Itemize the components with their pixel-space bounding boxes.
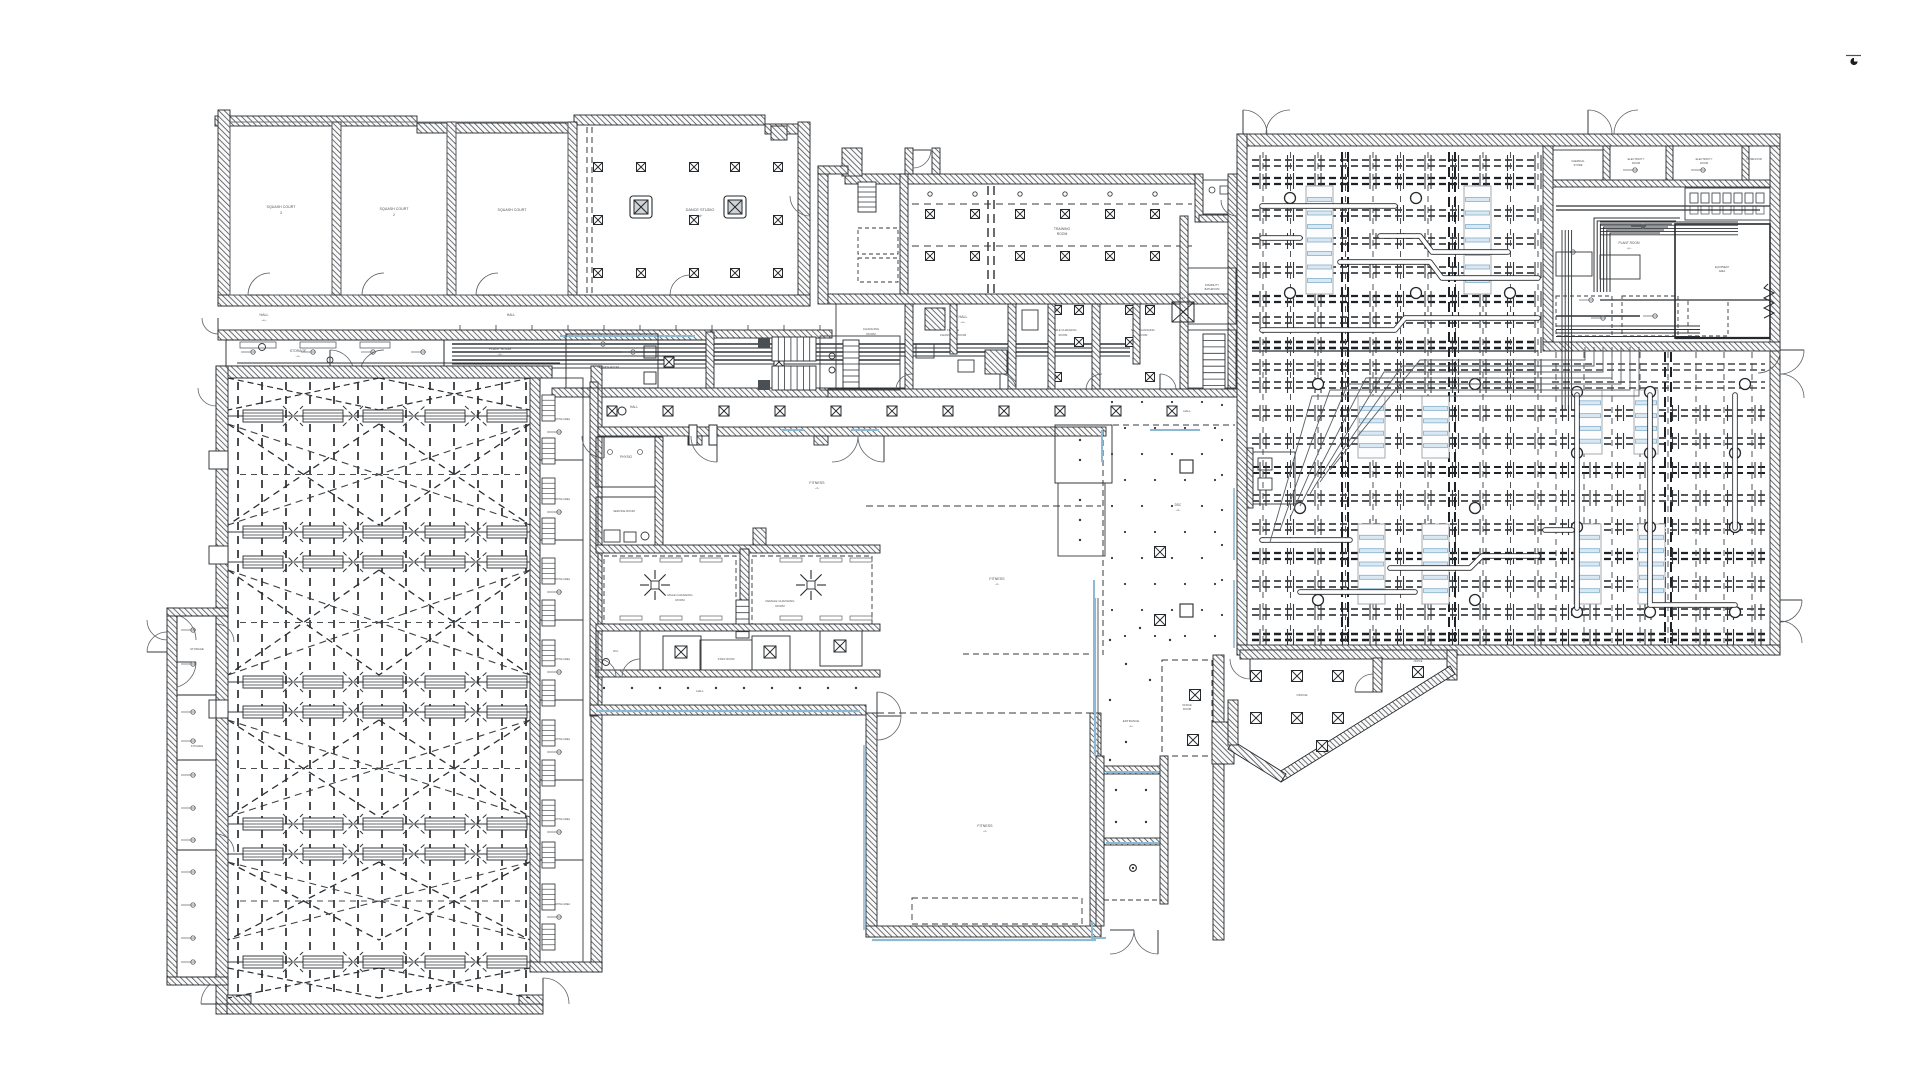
svg-text:~f~: ~f~ xyxy=(983,829,988,833)
svg-text:HALL: HALL xyxy=(1183,409,1191,413)
svg-text:ROOM: ROOM xyxy=(675,598,685,602)
svg-text:ROOM: ROOM xyxy=(1183,707,1191,711)
svg-text:ROOM: ROOM xyxy=(1059,333,1068,337)
svg-text:STORE: STORE xyxy=(1574,163,1583,167)
svg-text:SQUASH COURT: SQUASH COURT xyxy=(267,205,297,209)
svg-text:DSC: DSC xyxy=(1175,503,1182,507)
svg-text:FITNESS: FITNESS xyxy=(809,481,825,485)
svg-text:CHEMICAL: CHEMICAL xyxy=(1571,159,1585,163)
svg-text:OFFICE: OFFICE xyxy=(1182,703,1192,707)
svg-text:AREA: AREA xyxy=(1719,270,1726,273)
svg-text:FEMALE CHANGING: FEMALE CHANGING xyxy=(765,599,795,603)
svg-text:CHANGING: CHANGING xyxy=(863,327,880,331)
svg-text:HALL: HALL xyxy=(630,405,638,409)
svg-text:PHYSIO: PHYSIO xyxy=(620,455,633,459)
svg-text:MALE CHANGING: MALE CHANGING xyxy=(667,593,693,597)
svg-text:FITNESS: FITNESS xyxy=(989,577,1005,581)
svg-text:ROOM: ROOM xyxy=(1632,161,1640,165)
svg-text:EQUIPMENT: EQUIPMENT xyxy=(1715,266,1730,269)
svg-text:2: 2 xyxy=(393,213,395,217)
svg-text:BATHROOM: BATHROOM xyxy=(1205,287,1220,291)
svg-text:FITNESS: FITNESS xyxy=(977,824,993,828)
svg-text:LIFT: LIFT xyxy=(1181,297,1186,300)
svg-text:PLANT ROOM: PLANT ROOM xyxy=(1618,241,1639,245)
svg-text:~s~: ~s~ xyxy=(295,354,300,358)
svg-text:~e~: ~e~ xyxy=(261,318,266,322)
svg-text:~p~: ~p~ xyxy=(1627,246,1632,250)
svg-text:STAFF ROOM: STAFF ROOM xyxy=(718,657,735,661)
svg-text:HALL: HALL xyxy=(507,313,516,317)
svg-text:ROOM: ROOM xyxy=(1700,161,1708,165)
svg-text:W.C.: W.C. xyxy=(613,649,619,653)
svg-text:3: 3 xyxy=(280,211,282,215)
svg-text:HALL: HALL xyxy=(260,313,269,317)
svg-text:~f~: ~f~ xyxy=(995,582,1000,586)
svg-text:~f~: ~f~ xyxy=(815,486,820,490)
svg-text:STORAGE: STORAGE xyxy=(290,349,307,353)
svg-text:~e~: ~e~ xyxy=(960,320,965,324)
svg-text:HALL: HALL xyxy=(696,689,704,693)
svg-text:SERVICE ROOM: SERVICE ROOM xyxy=(613,509,635,513)
svg-text:OFFICE: OFFICE xyxy=(1297,693,1308,697)
svg-text:ROOM: ROOM xyxy=(775,604,785,608)
svg-text:ROOM: ROOM xyxy=(1057,232,1068,236)
svg-text:~e~: ~e~ xyxy=(1129,725,1134,728)
svg-text:HALL: HALL xyxy=(959,315,968,319)
svg-text:~d~: ~d~ xyxy=(1176,508,1181,512)
svg-text:SERVICE ROOM: SERVICE ROOM xyxy=(597,365,619,369)
svg-text:OFFICE: OFFICE xyxy=(1414,660,1423,663)
svg-text:DISABILITY: DISABILITY xyxy=(1205,283,1219,287)
svg-text:SQUASH COURT: SQUASH COURT xyxy=(380,207,410,211)
svg-text:ELECTRICITY: ELECTRICITY xyxy=(1696,157,1713,161)
svg-text:ELECTRICITY: ELECTRICITY xyxy=(1628,157,1645,161)
svg-text:STORAGE: STORAGE xyxy=(190,647,204,651)
svg-text:ENTRANCE: ENTRANCE xyxy=(1123,719,1140,723)
svg-text:SQUASH COURT: SQUASH COURT xyxy=(498,208,528,212)
svg-text:KITCHEN: KITCHEN xyxy=(191,744,203,748)
svg-text:DANCE STUDIO: DANCE STUDIO xyxy=(686,208,715,212)
svg-text:TRAINING: TRAINING xyxy=(1054,227,1071,231)
svg-text:STORE ROOM: STORE ROOM xyxy=(1746,159,1762,161)
svg-text:ROOM: ROOM xyxy=(866,332,876,336)
